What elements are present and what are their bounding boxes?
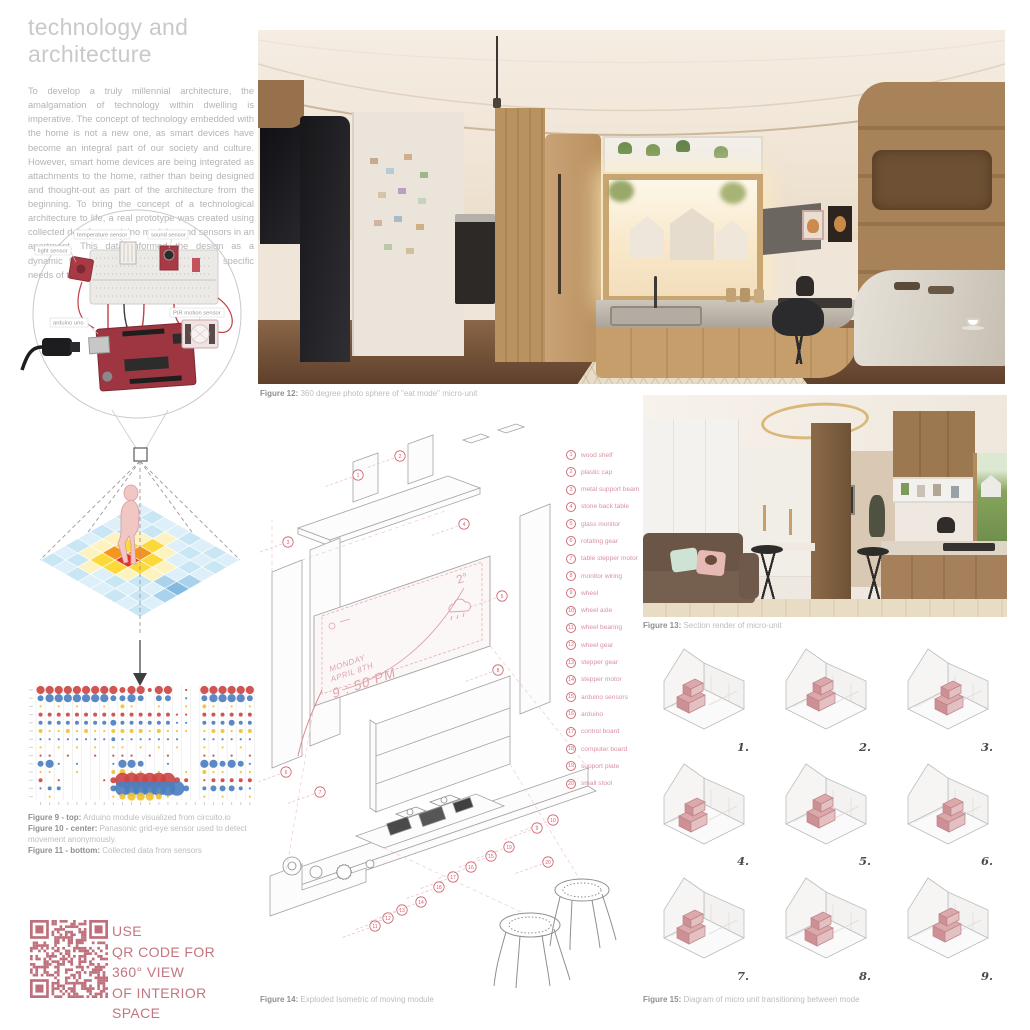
micro-unit-diagram: 8.: [767, 874, 889, 989]
legend-label: glass monitor: [581, 521, 620, 528]
fridge-shape: [300, 116, 350, 362]
unit-number-label: 3.: [981, 740, 993, 754]
data-bubble: [49, 755, 51, 757]
shelf-plants: [618, 142, 632, 154]
svg-text:6: 6: [285, 770, 288, 776]
data-bubble: [228, 686, 236, 694]
svg-text:8: 8: [497, 668, 500, 674]
data-bubble: [211, 713, 215, 717]
data-bubble: [140, 738, 142, 740]
legend-label: plastic cap: [581, 469, 612, 476]
data-bubble: [119, 794, 125, 800]
micro-unit-room-drawing: [649, 876, 759, 972]
data-bubble: [57, 721, 61, 725]
figure12-caption: Figure 12: 360 degree photo sphere of "e…: [260, 388, 477, 399]
small-stools: [494, 879, 616, 988]
data-bubble: [110, 720, 116, 726]
data-bubble: [112, 763, 114, 765]
data-bubble: [82, 686, 90, 694]
data-bubble: [39, 787, 41, 789]
data-bubble: [249, 796, 251, 798]
data-bubble: [146, 793, 154, 801]
data-bubble: [58, 763, 60, 765]
data-bubble: [248, 729, 252, 733]
data-bubble: [139, 729, 143, 733]
legend-label: table stepper motor: [581, 555, 638, 562]
legend-number-badge: 3: [566, 485, 576, 495]
data-bubble: [100, 686, 108, 694]
right-cubby-shape: [872, 150, 992, 210]
qr-instruction-text: USE QR CODE FOR 360° VIEW OF INTERIOR SP…: [112, 921, 215, 1024]
data-bubble: [200, 686, 208, 694]
pillow-bear-face: [705, 555, 717, 565]
data-bubble: [57, 713, 61, 717]
svg-text:13: 13: [399, 908, 405, 914]
person-silhouette: [110, 484, 154, 568]
upper-cabinets-shape: [893, 411, 975, 477]
data-bubble: [39, 778, 43, 782]
data-bubble: [130, 729, 134, 733]
data-bubble: [64, 694, 72, 702]
data-bubble: [157, 713, 161, 717]
data-bubble: [109, 686, 117, 694]
data-bubble: [167, 738, 169, 740]
data-bubble: [112, 755, 114, 757]
legend-label: wood shelf: [581, 452, 613, 459]
data-bubble: [246, 686, 254, 694]
figure10-heatmap-scene: [24, 440, 254, 692]
data-bubble: [66, 729, 70, 733]
data-bubble: [157, 721, 161, 725]
data-bubble: [170, 781, 185, 796]
data-bubble: [221, 738, 223, 740]
data-bubble: [228, 760, 236, 768]
data-bubble: [58, 730, 60, 732]
data-bubble: [158, 738, 160, 740]
data-bubble: [240, 746, 242, 748]
data-bubble: [166, 713, 170, 717]
data-bubble: [55, 694, 63, 702]
data-bubble: [221, 771, 223, 773]
micro-unit-room-drawing: [771, 762, 881, 858]
pendant-lamp-shape: [496, 36, 498, 102]
data-bubble: [76, 705, 78, 707]
data-bubble: [149, 738, 151, 740]
data-bubble: [112, 796, 114, 798]
unit-number-label: 8.: [859, 969, 871, 983]
data-bubble: [211, 778, 215, 782]
micro-unit-diagram: 6.: [889, 760, 1011, 875]
window-shape: [973, 453, 1007, 549]
data-bubble: [203, 730, 205, 732]
data-bubble: [239, 721, 243, 725]
data-bubble: [102, 713, 106, 717]
data-bubble: [55, 686, 63, 694]
figure13-section-render: [643, 395, 1007, 617]
data-bubble: [130, 721, 134, 725]
stool-right-legs: [861, 555, 887, 605]
data-bubble: [76, 763, 78, 765]
legend-label: metal support beam: [581, 486, 639, 493]
data-bubble: [176, 714, 178, 716]
legend-number-badge: 19: [566, 761, 576, 771]
data-bubble: [249, 755, 251, 757]
data-bubble: [91, 694, 99, 702]
svg-text:19: 19: [506, 845, 512, 851]
legend-number-badge: 5: [566, 519, 576, 529]
svg-text:9: 9: [536, 826, 539, 832]
sofa-arm-shape: [739, 553, 759, 599]
chair-legs-shape: [780, 334, 818, 364]
svg-text:14: 14: [418, 900, 424, 906]
data-bubble: [155, 686, 163, 694]
svg-text:5: 5: [501, 594, 504, 600]
legend-number-badge: 15: [566, 692, 576, 702]
coffee-saucer-shape: [962, 326, 984, 330]
pinned-photos: [370, 158, 378, 164]
data-bubble: [82, 694, 90, 702]
figure13-caption: Figure 13: Section render of micro-unit: [643, 620, 782, 631]
data-bubble: [120, 721, 124, 725]
data-bubble: [221, 778, 225, 782]
data-bubble: [221, 721, 225, 725]
svg-text:11: 11: [372, 924, 377, 930]
data-bubble: [121, 738, 123, 740]
legend-number-badge: 18: [566, 744, 576, 754]
data-bubble: [158, 746, 160, 748]
data-bubble: [94, 730, 96, 732]
left-wood-cabinet-shape: [258, 80, 304, 128]
data-bubble: [39, 721, 43, 725]
data-bubble: [212, 771, 214, 773]
data-bubble: [176, 730, 178, 732]
micro-unit-diagram: 3.: [889, 645, 1011, 760]
data-bubble: [239, 778, 243, 782]
pir-sensor-label: PIR motion sensor: [173, 311, 221, 317]
data-bubble: [73, 686, 81, 694]
data-bubble: [58, 705, 60, 707]
data-bubble: [36, 686, 44, 694]
data-bubble: [202, 713, 206, 717]
data-bubble: [231, 755, 233, 757]
unit-number-label: 5.: [859, 854, 871, 868]
data-bubble: [46, 694, 54, 702]
data-bubble: [64, 686, 72, 694]
data-bubble: [249, 763, 251, 765]
micro-unit-room-drawing: [771, 647, 881, 743]
micro-unit-diagram: 2.: [767, 645, 889, 760]
data-bubble: [185, 705, 187, 707]
qr-code: [30, 920, 108, 998]
data-bubble: [102, 721, 106, 725]
faucet-shape: [654, 276, 657, 308]
coat-shape: [869, 495, 885, 537]
legend-label: wheel gear: [581, 642, 613, 649]
data-bubble: [111, 713, 115, 717]
data-bubble: [75, 713, 79, 717]
data-bubble: [49, 796, 51, 798]
data-bubble: [211, 729, 215, 733]
wood-pillar-shape: [811, 423, 851, 617]
data-bubble: [237, 694, 245, 702]
figure9-arduino-diagram: light sensor temperature sensor sound se…: [24, 208, 250, 434]
data-bubble: [139, 713, 143, 717]
window-greenery: [608, 180, 634, 202]
usb-cable-shape: [22, 338, 80, 370]
legend-number-badge: 10: [566, 606, 576, 616]
data-bubble: [165, 695, 171, 701]
door-handle-shape: [558, 174, 561, 294]
legend-label: computer board: [581, 746, 627, 753]
data-bubble: [39, 746, 41, 748]
data-bubble: [202, 770, 206, 774]
data-bubble: [49, 738, 51, 740]
data-bubble: [158, 705, 160, 707]
data-bubble: [239, 729, 243, 733]
svg-text:17: 17: [450, 875, 456, 881]
data-bubble: [156, 695, 162, 701]
data-bubble: [121, 755, 123, 757]
data-bubble: [167, 763, 169, 765]
data-bubble: [249, 771, 251, 773]
data-bubble: [49, 771, 51, 773]
data-bubble: [57, 786, 61, 790]
data-bubble: [148, 713, 152, 717]
data-bubble: [176, 738, 178, 740]
data-bubble: [200, 760, 208, 768]
data-bubble: [203, 746, 205, 748]
data-bubble: [76, 771, 78, 773]
micro-unit-diagram: 9.: [889, 874, 1011, 989]
sliding-door-shape: [545, 134, 601, 362]
svg-text:18: 18: [436, 885, 442, 891]
data-bubble: [221, 746, 223, 748]
data-bubble: [202, 786, 206, 790]
legend-label: control board: [581, 728, 620, 735]
data-bubble: [218, 694, 226, 702]
data-bubble: [203, 755, 205, 757]
data-bubble: [84, 713, 88, 717]
data-bubble: [176, 722, 178, 724]
legend-label: wheel bearing: [581, 624, 622, 631]
arduino-uno-label: arduino uno: [53, 321, 84, 327]
chair-shape: [772, 298, 824, 336]
legend-number-badge: 12: [566, 640, 576, 650]
data-bubble: [240, 738, 242, 740]
svg-text:1: 1: [357, 473, 360, 479]
data-bubble: [111, 729, 115, 733]
data-bubble: [73, 694, 81, 702]
data-bubble: [212, 738, 214, 740]
data-bubble: [229, 785, 235, 791]
micro-unit-room-drawing: [649, 762, 759, 858]
data-bubble: [39, 738, 41, 740]
pir-sensor-shape: [182, 320, 218, 348]
data-bubble: [84, 721, 88, 725]
legend-label: arduino sensors: [581, 694, 628, 701]
data-bubble: [130, 738, 132, 740]
data-bubble: [48, 786, 52, 790]
data-bubble: [249, 705, 251, 707]
data-bubble: [58, 746, 60, 748]
unit-number-label: 6.: [981, 854, 993, 868]
data-bubble: [158, 771, 160, 773]
legend-label: small stool: [581, 780, 612, 787]
svg-text:20: 20: [545, 860, 551, 866]
data-bubble: [138, 761, 144, 767]
data-bubble: [103, 779, 105, 781]
data-bubble: [130, 705, 132, 707]
svg-text:7: 7: [319, 790, 322, 796]
kettle-shape: [937, 517, 955, 533]
micro-unit-room-drawing: [893, 876, 1003, 972]
data-bubble: [58, 738, 60, 740]
micro-unit-room-drawing: [893, 647, 1003, 743]
data-bubble: [58, 779, 60, 781]
figure15-caption: Figure 15: Diagram of micro unit transit…: [643, 994, 860, 1005]
cooktop-shape: [943, 543, 995, 551]
micro-unit-room-drawing: [893, 762, 1003, 858]
data-bubble: [218, 686, 226, 694]
data-bubble: [167, 796, 169, 798]
data-bubble: [39, 713, 43, 717]
data-bubble: [94, 738, 96, 740]
unit-number-label: 7.: [737, 969, 749, 983]
unit-number-label: 4.: [737, 854, 749, 868]
data-bubble: [39, 755, 41, 757]
data-bubble: [212, 755, 214, 757]
legend-label: wheel axle: [581, 607, 612, 614]
data-bubble: [230, 778, 234, 782]
data-bubble: [137, 686, 145, 694]
figure12-panorama-image: [258, 30, 1005, 384]
data-bubble: [121, 746, 123, 748]
data-bubble: [130, 713, 134, 717]
figure11-bubble-chart: [28, 684, 256, 806]
data-bubble: [93, 721, 97, 725]
data-bubble: [67, 738, 69, 740]
data-bubble: [148, 721, 152, 725]
tv-screen-shape: [260, 122, 300, 244]
data-bubble: [248, 713, 252, 717]
data-bubble: [221, 729, 225, 733]
data-bubble: [185, 689, 187, 691]
data-bubble: [120, 713, 124, 717]
data-bubble: [228, 694, 236, 702]
data-bubble: [38, 695, 44, 701]
data-bubble: [140, 771, 142, 773]
data-bubble: [85, 738, 87, 740]
data-bubble: [75, 721, 79, 725]
data-bubble: [203, 779, 205, 781]
data-bubble: [127, 793, 135, 801]
led-shape: [192, 258, 200, 272]
tray-items-shape: [894, 282, 920, 290]
data-bubble: [221, 796, 223, 798]
data-bubble: [39, 771, 41, 773]
data-bubble: [139, 721, 143, 725]
figure10-caption: Figure 10 - center: Panasonic grid-eye s…: [28, 823, 260, 845]
picture-cat-art: [807, 219, 819, 233]
legend-label: support plate: [581, 763, 619, 770]
data-bubble: [127, 686, 135, 694]
temperature-sensor-shape: [120, 242, 136, 264]
svg-text:12: 12: [385, 916, 391, 922]
tall-wood-unit-shape: [495, 108, 545, 362]
legend-number-badge: 2: [566, 467, 576, 477]
arduino-uno-shape: [88, 323, 196, 392]
data-bubble: [209, 686, 217, 694]
data-bubble: [212, 705, 214, 707]
legend-label: rotating gear: [581, 538, 618, 545]
sound-sensor-shape: [160, 246, 178, 270]
picture-owl-art: [834, 216, 846, 232]
legend-label: wheel: [581, 590, 598, 597]
data-bubble: [76, 746, 78, 748]
unit-number-label: 2.: [859, 740, 871, 754]
data-bubble: [185, 697, 187, 699]
data-bubble: [140, 746, 142, 748]
data-bubble: [39, 729, 43, 733]
data-bubble: [149, 730, 151, 732]
photo-wall-shape: [352, 112, 464, 356]
data-bubble: [239, 786, 243, 790]
legend-label: stepper gear: [581, 659, 618, 666]
data-bubble: [127, 694, 135, 702]
data-bubble: [76, 730, 78, 732]
sink-shape: [610, 306, 702, 326]
data-bubble: [94, 746, 96, 748]
data-bubble: [138, 695, 144, 701]
data-bubble: [201, 695, 207, 701]
legend-number-badge: 14: [566, 675, 576, 685]
data-bubble: [239, 713, 243, 717]
temperature-sensor-label: temperature sensor: [77, 233, 127, 239]
data-bubble: [249, 787, 251, 789]
data-bubble: [202, 721, 206, 725]
data-bubble: [185, 722, 187, 724]
jars-shape: [726, 288, 736, 302]
svg-text:4: 4: [463, 522, 466, 528]
data-bubble: [127, 760, 135, 768]
figure9-caption: Figure 9 - top: Arduino module visualize…: [28, 812, 260, 823]
data-bubble: [231, 738, 233, 740]
pillow-mint-shape: [670, 547, 700, 573]
data-bubble: [94, 755, 96, 757]
data-bubble: [209, 694, 217, 702]
data-bubble: [46, 686, 54, 694]
data-bubble: [48, 713, 52, 717]
legend-number-badge: 7: [566, 554, 576, 564]
data-bubble: [118, 760, 126, 768]
data-bubble: [148, 688, 152, 692]
light-sensor-shape: [68, 256, 93, 281]
data-bubble: [38, 761, 44, 767]
legend-label: arduino: [581, 711, 603, 718]
data-bubble: [119, 695, 125, 701]
figure15-unit-grid: 1.2.3.4.5.6.7.8.9.: [645, 645, 1011, 989]
data-bubble: [48, 721, 52, 725]
legend-number-badge: 11: [566, 623, 576, 633]
data-bubble: [237, 686, 245, 694]
data-bubble: [103, 730, 105, 732]
data-bubble: [66, 713, 70, 717]
data-bubble: [210, 785, 216, 791]
data-bubble: [110, 695, 116, 701]
light-sensor-label: light sensor: [38, 249, 68, 255]
micro-unit-room-drawing: [649, 647, 759, 743]
data-bubble: [209, 760, 217, 768]
